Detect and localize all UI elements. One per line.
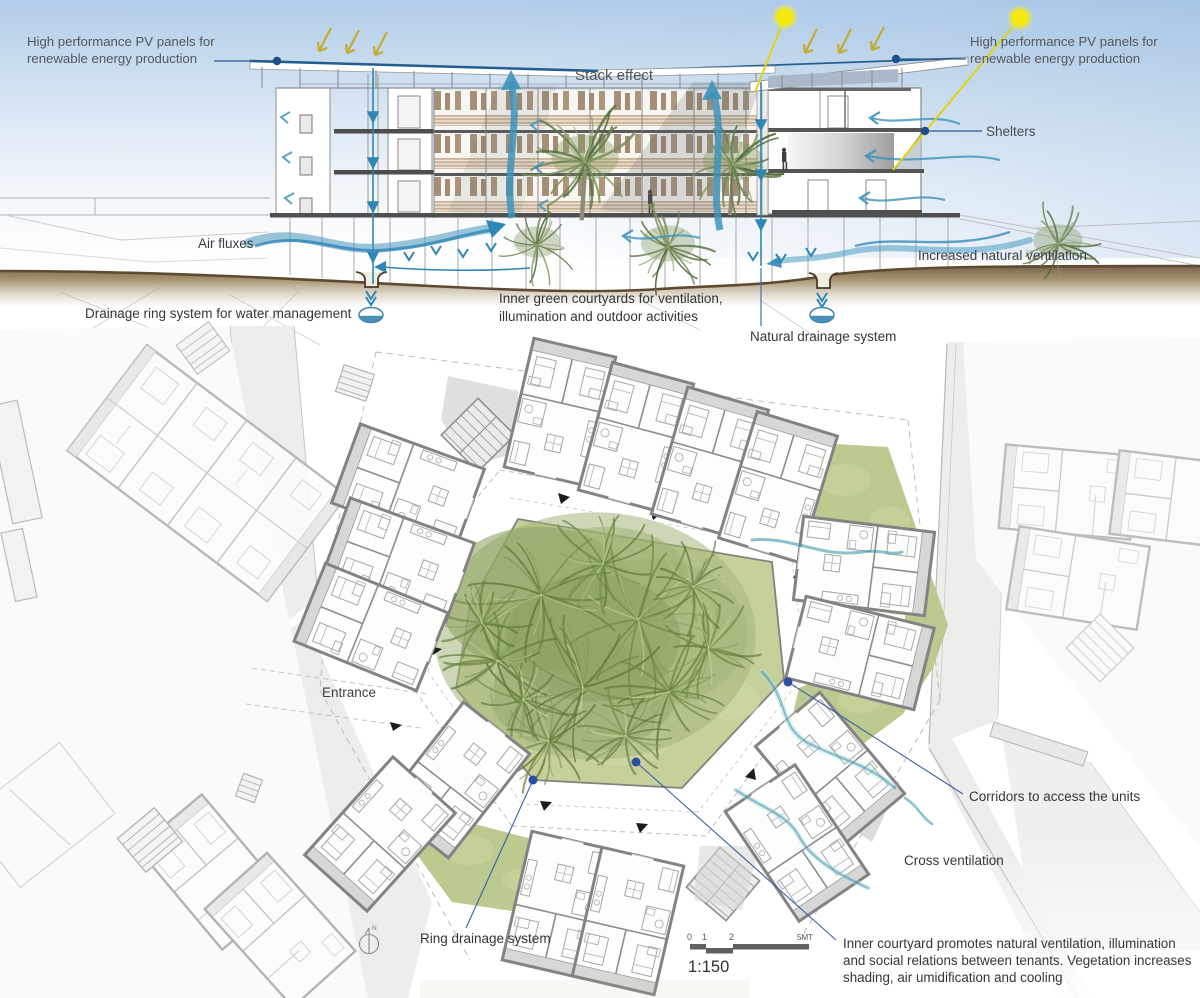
svg-text:Inner courtyard promotes natur: Inner courtyard promotes natural ventila… [843,936,1176,951]
svg-text:Inner green courtyards for ven: Inner green courtyards for ventilation, [499,291,723,306]
svg-text:Natural drainage system: Natural drainage system [750,329,896,344]
svg-text:High performance PV panels for: High performance PV panels for [970,34,1158,49]
svg-text:Air fluxes: Air fluxes [198,236,254,251]
svg-text:renewable energy production: renewable energy production [970,51,1140,66]
svg-text:High performance PV panels for: High performance PV panels for [27,34,215,49]
svg-text:and social relations between t: and social relations between tenants. Ve… [843,953,1192,968]
svg-text:Cross ventilation: Cross ventilation [904,853,1004,868]
svg-text:1: 1 [702,932,707,942]
svg-text:illumination and outdoor activ: illumination and outdoor activities [499,309,698,324]
svg-text:Corridors to access the units: Corridors to access the units [969,789,1140,804]
svg-text:shading, air umidification and: shading, air umidification and cooling [843,970,1063,985]
svg-text:Stack effect: Stack effect [575,67,654,84]
svg-text:Shelters: Shelters [986,124,1036,139]
svg-text:2: 2 [729,932,734,942]
svg-text:1:150: 1:150 [688,958,729,976]
svg-text:Drainage ring system for water: Drainage ring system for water managemen… [85,306,352,321]
svg-text:0: 0 [687,932,692,942]
svg-text:renewable energy production: renewable energy production [27,51,197,66]
svg-text:N: N [372,925,377,932]
svg-text:5MT: 5MT [797,933,813,942]
svg-text:Increased natural ventilation: Increased natural ventilation [918,248,1087,263]
svg-text:Ring drainage system: Ring drainage system [420,931,551,946]
svg-text:Entrance: Entrance [322,685,376,700]
